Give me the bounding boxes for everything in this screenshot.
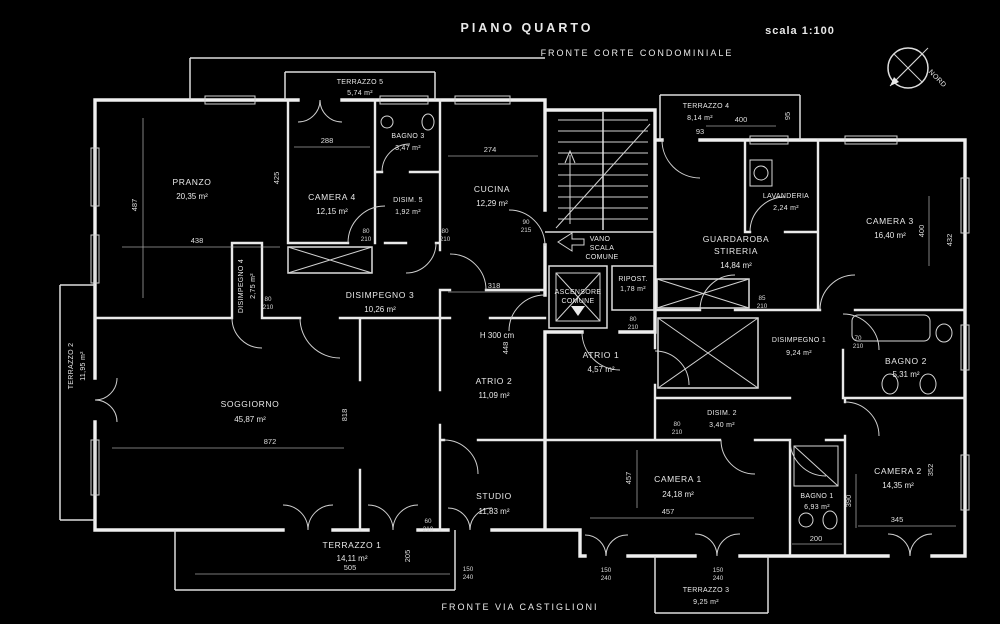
room-area: 9,25 m² bbox=[693, 599, 719, 606]
room-disimpegno1: DISIMPEGNO 19,24 m² bbox=[772, 337, 826, 357]
room-guardaroba: GUARDAROBASTIRERIA14,84 m² bbox=[703, 234, 769, 270]
room-area: 12,29 m² bbox=[476, 199, 508, 208]
door-arcs bbox=[95, 100, 932, 556]
room-camera1: CAMERA 124,18 m² bbox=[654, 474, 702, 499]
room-lavanderia: LAVANDERIA2,24 m² bbox=[763, 193, 809, 212]
dimension: 205 bbox=[403, 550, 412, 563]
door-width: 70 bbox=[854, 335, 862, 342]
scale-label: scala 1:100 bbox=[765, 25, 835, 37]
door-height: 210 bbox=[423, 526, 434, 533]
door-width: 80 bbox=[629, 316, 637, 323]
room-label: COMUNE bbox=[562, 298, 595, 305]
room-label: CUCINA bbox=[474, 184, 510, 194]
room-terrazzo4: TERRAZZO 48,14 m² bbox=[683, 103, 730, 122]
room-label: TERRAZZO 2 bbox=[68, 343, 75, 390]
dimension: 200 bbox=[810, 534, 823, 543]
room-bagno2: BAGNO 25,31 m² bbox=[885, 356, 927, 379]
room-label: DISIMPEGNO 1 bbox=[772, 337, 826, 344]
room-area: 14,84 m² bbox=[720, 261, 752, 270]
door-height: 210 bbox=[672, 429, 683, 436]
door-width: 150 bbox=[713, 567, 724, 574]
room-bagno3: BAGNO 33,47 m² bbox=[391, 133, 424, 152]
room-camera2: CAMERA 214,35 m² bbox=[874, 466, 922, 490]
door-width: 150 bbox=[601, 567, 612, 574]
room-terrazzo2: TERRAZZO 211,95 m² bbox=[68, 343, 87, 390]
dimension: 352 bbox=[926, 464, 935, 477]
dimension: 390 bbox=[844, 495, 853, 508]
room-atrio1: ATRIO 14,57 m² bbox=[583, 350, 620, 374]
room-label: SCALA bbox=[590, 245, 614, 252]
front-top-label: FRONTE CORTE CONDOMINIALE bbox=[541, 48, 734, 58]
room-label: STUDIO bbox=[476, 491, 512, 501]
dimension: 95 bbox=[783, 112, 792, 120]
room-area: 20,35 m² bbox=[176, 192, 208, 201]
dimension-texts: 487 438 425 288 274 318 448 818 872 505 … bbox=[130, 112, 954, 572]
room-disimpegno3: DISIMPEGNO 310,26 m² bbox=[346, 290, 415, 314]
door-height: 210 bbox=[853, 343, 864, 350]
dimension: 274 bbox=[484, 145, 497, 154]
door-height: 210 bbox=[757, 303, 768, 310]
room-label: ATRIO 1 bbox=[583, 350, 620, 360]
room-label: CAMERA 3 bbox=[866, 216, 914, 226]
room-area: 1,78 m² bbox=[620, 286, 646, 293]
room-label: DISIMPEGNO 3 bbox=[346, 290, 415, 300]
room-label: CAMERA 4 bbox=[308, 192, 356, 202]
room-label: PRANZO bbox=[172, 177, 211, 187]
dimension: 345 bbox=[891, 515, 904, 524]
dimension: 288 bbox=[321, 136, 334, 145]
room-area: 24,18 m² bbox=[662, 490, 694, 499]
room-labels: PRANZO20,35 m² CAMERA 412,15 m² BAGNO 33… bbox=[68, 79, 927, 606]
room-disimpegno4: DISIMPEGNO 42,75 m² bbox=[238, 259, 257, 313]
room-area: 2,75 m² bbox=[250, 273, 257, 299]
dimension: 457 bbox=[624, 472, 633, 485]
room-label: CAMERA 1 bbox=[654, 474, 702, 484]
room-area: 16,40 m² bbox=[874, 231, 906, 240]
room-terrazzo3: TERRAZZO 39,25 m² bbox=[683, 587, 730, 606]
room-area: 11,09 m² bbox=[479, 391, 510, 400]
dimension: 400 bbox=[735, 115, 748, 124]
sink-icon bbox=[936, 324, 952, 342]
dimension: 448 bbox=[501, 342, 510, 355]
room-label: ASCENSORE bbox=[555, 289, 602, 296]
room-terrazzo1: TERRAZZO 114,11 m² bbox=[323, 540, 382, 563]
dimension: 818 bbox=[340, 409, 349, 422]
staircase bbox=[545, 112, 655, 251]
room-area: 2,24 m² bbox=[773, 205, 799, 212]
room-disim2: DISIM. 23,40 m² bbox=[707, 410, 737, 429]
room-area: 12,15 m² bbox=[316, 207, 348, 216]
room-label: BAGNO 2 bbox=[885, 356, 927, 366]
dimension: 400 bbox=[917, 225, 926, 238]
room-area: 1,92 m² bbox=[395, 209, 421, 216]
room-studio: STUDIO11,83 m² bbox=[476, 491, 512, 516]
dimension: 438 bbox=[191, 236, 204, 245]
room-camera3: CAMERA 316,40 m² bbox=[866, 216, 914, 240]
washing-machine-icon bbox=[750, 160, 772, 186]
room-area: 14,11 m² bbox=[337, 554, 368, 563]
room-bagno1: BAGNO 16,93 m² bbox=[800, 493, 833, 511]
room-label: VANO bbox=[590, 236, 611, 243]
room-soggiorno: SOGGIORNO45,87 m² bbox=[221, 399, 280, 424]
room-label: DISIM. 5 bbox=[393, 197, 423, 204]
dimension: 425 bbox=[272, 172, 281, 185]
room-label: LAVANDERIA bbox=[763, 193, 809, 200]
room-label: SOGGIORNO bbox=[221, 399, 280, 409]
room-label: TERRAZZO 5 bbox=[337, 79, 384, 86]
door-height: 240 bbox=[463, 574, 474, 581]
room-label: RIPOST. bbox=[618, 276, 647, 283]
room-area: 10,26 m² bbox=[364, 305, 396, 314]
door-height: 215 bbox=[521, 227, 532, 234]
door-height: 240 bbox=[601, 575, 612, 582]
room-camera4: CAMERA 412,15 m² bbox=[308, 192, 356, 216]
toilet-icon bbox=[422, 114, 434, 130]
dimension: 93 bbox=[696, 127, 704, 136]
room-area: 45,87 m² bbox=[234, 415, 266, 424]
door-width: 80 bbox=[362, 228, 370, 235]
room-label: BAGNO 1 bbox=[800, 493, 833, 500]
room-label: COMUNE bbox=[586, 254, 619, 261]
door-width: 60 bbox=[424, 518, 432, 525]
outer-walls bbox=[95, 100, 965, 556]
front-bottom-label: FRONTE VIA CASTIGLIONI bbox=[441, 602, 598, 612]
page-title: PIANO QUARTO bbox=[461, 21, 594, 35]
room-label: TERRAZZO 1 bbox=[323, 540, 382, 550]
door-height: 210 bbox=[628, 324, 639, 331]
room-label: TERRAZZO 3 bbox=[683, 587, 730, 594]
room-label: ATRIO 2 bbox=[476, 376, 513, 386]
door-height: 210 bbox=[263, 304, 274, 311]
bathroom-fixtures bbox=[381, 114, 952, 529]
room-area: 14,35 m² bbox=[882, 481, 914, 490]
door-height: 210 bbox=[361, 236, 372, 243]
door-width: 80 bbox=[264, 296, 272, 303]
room-area: 3,40 m² bbox=[709, 422, 735, 429]
compass-north-label: NORD bbox=[927, 69, 947, 89]
door-width: 90 bbox=[522, 219, 530, 226]
room-area: 6,93 m² bbox=[804, 504, 830, 511]
room-label: CAMERA 2 bbox=[874, 466, 922, 476]
partition-walls bbox=[95, 100, 965, 555]
dimension: 432 bbox=[945, 234, 954, 247]
room-disim5: DISIM. 51,92 m² bbox=[393, 197, 423, 216]
room-area: 5,74 m² bbox=[347, 90, 373, 97]
room-pranzo: PRANZO20,35 m² bbox=[172, 177, 211, 201]
room-area: 8,14 m² bbox=[687, 115, 713, 122]
floor-plan-sheet: PIANO QUARTO scala 1:100 FRONTE CORTE CO… bbox=[0, 0, 1000, 624]
dimension: 487 bbox=[130, 199, 139, 212]
entry-arrow-icon bbox=[558, 233, 584, 251]
dimension: 318 bbox=[488, 281, 501, 290]
room-label: DISIM. 2 bbox=[707, 410, 737, 417]
room-cucina: CUCINA12,29 m² bbox=[474, 184, 510, 208]
room-area: 4,57 m² bbox=[587, 365, 614, 374]
room-label: STIRERIA bbox=[714, 246, 758, 256]
room-label: DISIMPEGNO 4 bbox=[238, 259, 245, 313]
sink-icon bbox=[381, 116, 393, 128]
door-height: 240 bbox=[713, 575, 724, 582]
door-width: 85 bbox=[758, 295, 766, 302]
room-area: 9,24 m² bbox=[786, 350, 812, 357]
toilet-icon bbox=[823, 511, 837, 529]
elevator-down-arrow bbox=[571, 306, 585, 316]
room-area: 11,95 m² bbox=[80, 351, 87, 381]
sink-icon bbox=[799, 513, 813, 527]
room-vano-scala: VANOSCALACOMUNE bbox=[586, 236, 619, 261]
dimension: 872 bbox=[264, 437, 277, 446]
bidet-icon bbox=[920, 374, 936, 394]
room-ripostiglio: RIPOST.1,78 m² bbox=[618, 276, 647, 293]
dimension: 505 bbox=[344, 563, 357, 572]
bathtub-icon bbox=[852, 315, 930, 341]
room-label: TERRAZZO 4 bbox=[683, 103, 730, 110]
elevator bbox=[549, 266, 607, 328]
height-note: H 300 cm bbox=[480, 331, 515, 340]
compass-icon: NORD bbox=[888, 48, 947, 89]
dimension: 457 bbox=[662, 507, 675, 516]
room-area: 11,83 m² bbox=[479, 507, 510, 516]
room-label: GUARDAROBA bbox=[703, 234, 769, 244]
room-atrio2: ATRIO 211,09 m² bbox=[476, 376, 513, 400]
room-area: 3,47 m² bbox=[395, 145, 421, 152]
room-area: 5,31 m² bbox=[892, 370, 919, 379]
door-width: 80 bbox=[673, 421, 681, 428]
door-width: 150 bbox=[463, 566, 474, 573]
room-label: BAGNO 3 bbox=[391, 133, 424, 140]
door-width: 80 bbox=[441, 228, 449, 235]
floor-plan-drawing: PIANO QUARTO scala 1:100 FRONTE CORTE CO… bbox=[0, 0, 1000, 624]
door-height: 210 bbox=[440, 236, 451, 243]
room-terrazzo5: TERRAZZO 55,74 m² bbox=[337, 79, 384, 97]
